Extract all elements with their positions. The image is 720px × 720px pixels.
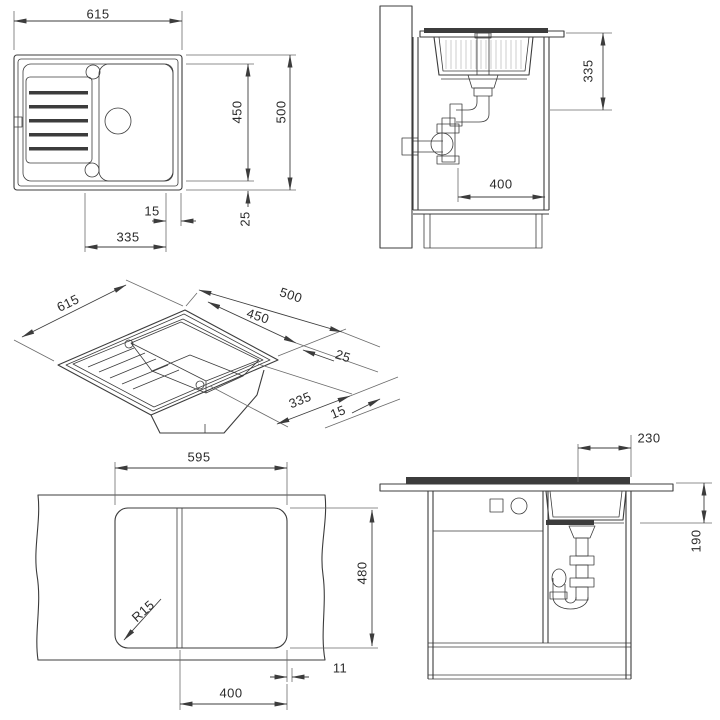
bowl-underside — [151, 370, 264, 433]
cutout-view — [36, 462, 378, 710]
drain-hole — [105, 108, 131, 134]
wall — [380, 6, 412, 248]
cutout-seam — [177, 508, 182, 648]
tap-hole-top — [86, 65, 100, 79]
standpipe — [477, 33, 489, 75]
cutout-outline — [115, 508, 287, 648]
dim-side-install-depth: 335 — [581, 60, 596, 83]
dim-cutout-bowl-width: 400 — [220, 686, 243, 701]
countertop-slab — [36, 495, 326, 660]
wall-outlet — [402, 138, 418, 155]
dim-cutout-depth: 480 — [355, 562, 370, 585]
tap-hole-bottom — [85, 163, 99, 177]
drawing-linework — [0, 0, 720, 720]
sink-rim — [406, 477, 630, 484]
dim-plan-bowl-width: 335 — [117, 230, 140, 245]
sink-rim — [424, 28, 548, 33]
side-section-view — [380, 6, 612, 248]
dim-cutout-width: 595 — [188, 450, 211, 465]
dim-plan-edge-gap: 15 — [144, 204, 159, 219]
plinth — [424, 214, 542, 248]
dim-front-bowl-depth: 190 — [689, 530, 704, 553]
countertop — [380, 484, 673, 491]
socket-circle — [511, 498, 527, 514]
trap-bend — [553, 578, 588, 609]
dim-plan-overall-depth: 500 — [274, 101, 289, 124]
sink-technical-drawing-sheet: 615 450 500 15 25 335 335 400 615 500 45… — [0, 0, 720, 720]
drainboard-ribs — [88, 348, 179, 389]
front-section-view — [380, 435, 712, 679]
dim-plan-overall-width: 615 — [87, 7, 110, 22]
dim-side-drain-offset: 400 — [490, 177, 513, 192]
dim-plan-rim-inset: 25 — [238, 211, 253, 226]
dim-front-bowl-width: 230 — [638, 431, 661, 446]
dim-plan-inner-depth: 450 — [230, 101, 245, 124]
dim-cutout-reveal: 11 — [333, 661, 347, 676]
socket-square — [490, 499, 503, 512]
